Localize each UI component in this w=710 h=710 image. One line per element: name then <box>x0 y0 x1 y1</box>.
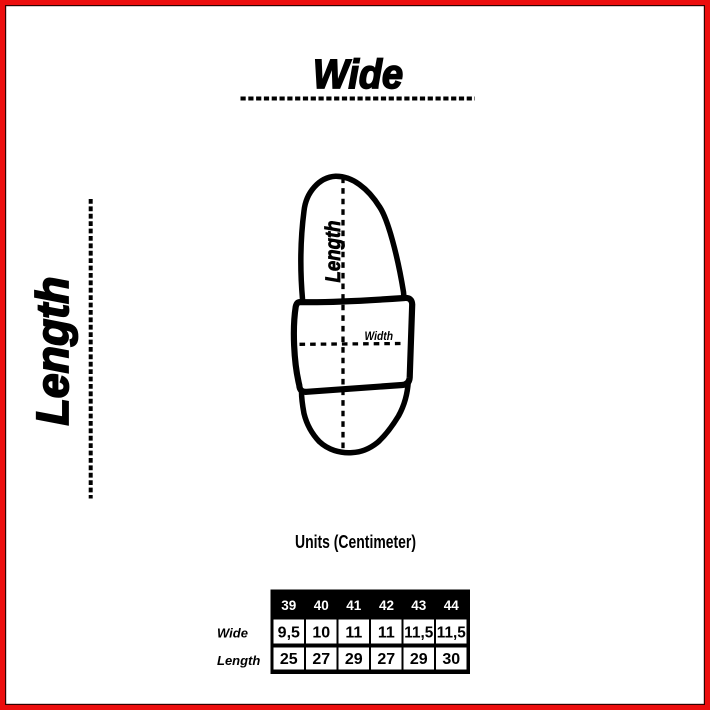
svg-text:Length: Length <box>322 221 345 283</box>
svg-text:40: 40 <box>314 598 329 613</box>
svg-text:30: 30 <box>442 651 460 668</box>
svg-text:11: 11 <box>345 625 362 642</box>
svg-text:43: 43 <box>411 598 427 613</box>
svg-text:Wide: Wide <box>313 51 403 97</box>
svg-text:27: 27 <box>377 651 395 668</box>
svg-text:27: 27 <box>312 651 330 668</box>
svg-text:29: 29 <box>345 651 363 668</box>
svg-text:29: 29 <box>410 651 428 668</box>
svg-text:10: 10 <box>312 625 330 642</box>
svg-text:Wide: Wide <box>217 625 248 640</box>
svg-text:11,5: 11,5 <box>404 625 433 642</box>
svg-text:Width: Width <box>365 331 394 343</box>
svg-text:25: 25 <box>280 651 298 668</box>
svg-text:11,5: 11,5 <box>437 625 466 642</box>
svg-text:9,5: 9,5 <box>278 625 300 642</box>
svg-text:41: 41 <box>346 598 362 613</box>
svg-text:Length: Length <box>27 277 78 426</box>
svg-text:44: 44 <box>444 598 460 613</box>
svg-text:11: 11 <box>378 625 395 642</box>
svg-text:Length: Length <box>217 653 260 668</box>
svg-text:Units (Centimeter): Units (Centimeter) <box>295 532 416 552</box>
svg-text:39: 39 <box>281 598 296 613</box>
svg-text:42: 42 <box>379 598 394 613</box>
